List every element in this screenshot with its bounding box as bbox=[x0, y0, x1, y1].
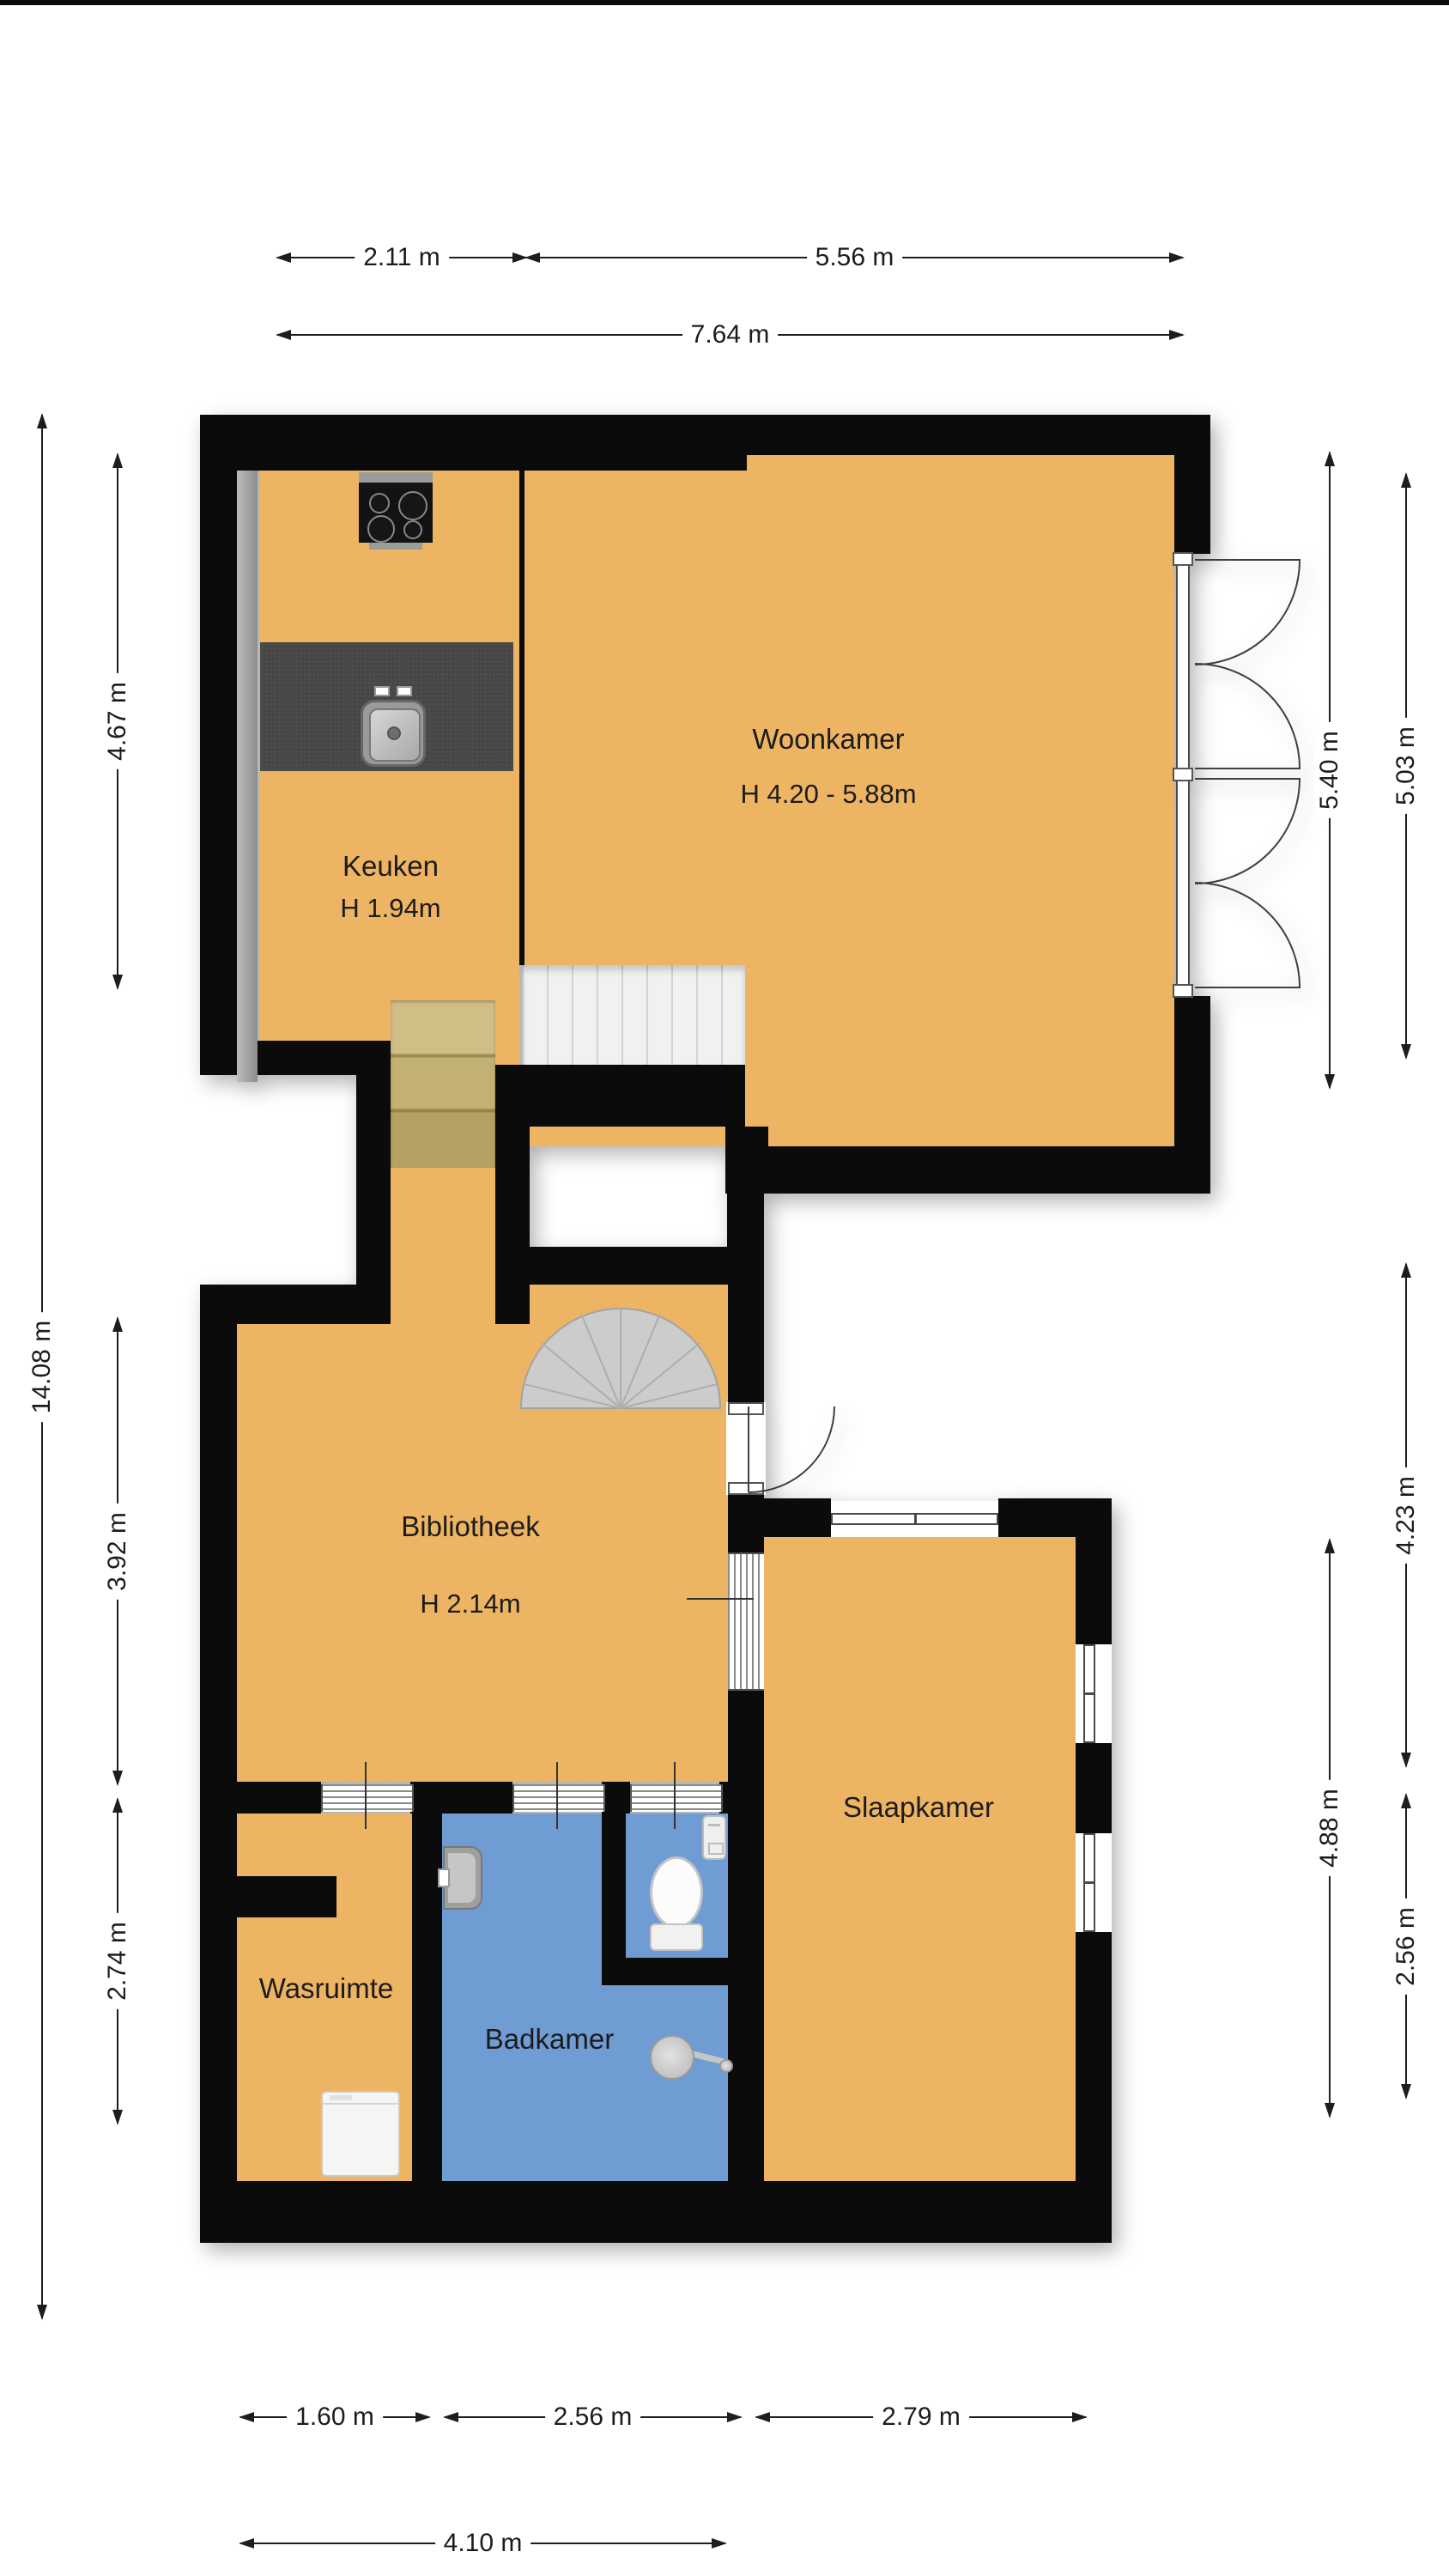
wall-slaap-top-right bbox=[998, 1498, 1112, 1537]
kitchen-faucet bbox=[374, 686, 390, 696]
kitchen-faucet-2 bbox=[397, 686, 412, 696]
cistern-icon bbox=[702, 1815, 726, 1860]
wall-left-lower bbox=[200, 1285, 237, 2243]
window-interior-1 bbox=[321, 1784, 414, 1812]
dim-bottom-2-56: 2.56 m bbox=[445, 2416, 741, 2418]
label-wasruimte: Wasruimte bbox=[259, 1972, 393, 2005]
wall-top-keuken bbox=[200, 415, 747, 471]
kitchen-sink-drain bbox=[387, 726, 401, 740]
wall-keuken-bottom bbox=[200, 1041, 391, 1075]
window-slaapkamer-right-2-divider bbox=[1083, 1881, 1095, 1884]
washing-machine-icon bbox=[321, 2091, 400, 2177]
window-interior-3 bbox=[630, 1784, 723, 1812]
window-sill-line bbox=[687, 1598, 754, 1600]
window-slaapkamer-top-divider bbox=[914, 1513, 917, 1525]
shower-sprayer bbox=[719, 2059, 733, 2073]
wall-keuken-woonkamer-divider bbox=[519, 458, 524, 965]
label-bibliotheek-height: H 2.14m bbox=[420, 1589, 520, 1619]
wall-slaap-right-a bbox=[1076, 1537, 1112, 1644]
bathroom-sink-tap bbox=[438, 1868, 450, 1887]
dim-right-4-23: 4.23 m bbox=[1405, 1264, 1407, 1766]
window-tick-1 bbox=[365, 1762, 367, 1829]
dim-left-3-92: 3.92 m bbox=[117, 1318, 118, 1784]
wall-bib-south-2 bbox=[410, 1782, 512, 1814]
label-keuken: Keuken bbox=[343, 850, 439, 883]
floorplan-drawing bbox=[0, 0, 1449, 2576]
stove-handle bbox=[359, 472, 433, 483]
wall-wasruimte-stub bbox=[237, 1876, 336, 1917]
window-bibliotheek-east bbox=[728, 1552, 764, 1691]
wall-toilet-niche-v bbox=[602, 1814, 626, 1958]
toilet-tank bbox=[650, 1923, 703, 1951]
wall-left-upper bbox=[200, 471, 237, 1075]
stove-foot bbox=[369, 543, 422, 550]
wall-stairs-connector bbox=[725, 1127, 768, 1152]
wall-right-upper-a bbox=[1174, 455, 1210, 554]
label-woonkamer-height: H 4.20 - 5.88m bbox=[740, 779, 916, 810]
window-interior-2 bbox=[512, 1784, 605, 1812]
dim-right-2-56: 2.56 m bbox=[1405, 1795, 1407, 2098]
window-tick-2 bbox=[556, 1762, 558, 1829]
dim-left-4-67: 4.67 m bbox=[117, 454, 118, 988]
label-keuken-height: H 1.94m bbox=[340, 893, 440, 924]
french-doors-cap-bottom bbox=[1173, 984, 1193, 998]
dim-bottom-4-10: 4.10 m bbox=[240, 2543, 725, 2544]
label-slaapkamer: Slaapkamer bbox=[843, 1791, 994, 1824]
wall-corridor-right bbox=[495, 1127, 530, 1324]
burner-small-1 bbox=[369, 493, 390, 513]
wall-bib-south-3 bbox=[602, 1782, 630, 1814]
dim-bottom-2-79: 2.79 m bbox=[756, 2416, 1086, 2418]
dim-top-5-56: 5.56 m bbox=[526, 257, 1183, 258]
toilet-icon bbox=[650, 1856, 703, 1929]
dim-left-2-74: 2.74 m bbox=[117, 1799, 118, 2123]
dim-top-2-11: 2.11 m bbox=[277, 257, 526, 258]
wall-bib-south-4 bbox=[719, 1782, 764, 1814]
wall-bib-top-b bbox=[530, 1247, 764, 1285]
window-tick-3 bbox=[674, 1762, 676, 1829]
dim-bottom-1-60: 1.60 m bbox=[240, 2416, 429, 2418]
kitchen-low-wall bbox=[237, 471, 258, 1082]
burner-large-1 bbox=[398, 491, 427, 520]
stove-icon bbox=[359, 483, 433, 543]
spiral-stairs bbox=[519, 1305, 722, 1410]
floorplan-page: Woonkamer H 4.20 - 5.88m Keuken H 1.94m … bbox=[0, 0, 1449, 2576]
door-swing-arc bbox=[725, 1370, 846, 1507]
wall-bib-south-1 bbox=[236, 1782, 321, 1814]
shower-icon bbox=[650, 2035, 694, 2080]
wall-toilet-niche-h bbox=[602, 1958, 728, 1985]
burner-large-2 bbox=[367, 515, 395, 543]
dim-right-5-03: 5.03 m bbox=[1405, 474, 1407, 1058]
label-bibliotheek: Bibliotheek bbox=[401, 1510, 539, 1543]
wall-bib-east-lower bbox=[728, 1687, 764, 2181]
wall-top-woonkamer bbox=[747, 415, 1210, 455]
dim-left-14-08: 14.08 m bbox=[41, 415, 43, 2318]
french-doors-cap-top bbox=[1173, 552, 1193, 566]
wall-slaap-right-b bbox=[1076, 1743, 1112, 1833]
straight-stairs bbox=[522, 965, 745, 1065]
dim-right-4-88: 4.88 m bbox=[1329, 1540, 1331, 2117]
burner-small-2 bbox=[403, 520, 422, 539]
dim-top-7-64: 7.64 m bbox=[277, 334, 1183, 336]
french-doors-cap-mid bbox=[1173, 768, 1193, 781]
floor-slaapkamer bbox=[764, 1537, 1076, 2181]
wall-woonkamer-bottom bbox=[725, 1146, 1210, 1194]
window-slaapkamer-right-1-divider bbox=[1083, 1692, 1095, 1695]
dim-right-5-40: 5.40 m bbox=[1329, 453, 1331, 1088]
bathroom-sink-basin bbox=[448, 1853, 476, 1903]
wall-under-stairs bbox=[495, 1065, 745, 1127]
label-badkamer: Badkamer bbox=[485, 2023, 614, 2056]
wall-bottom bbox=[200, 2181, 1112, 2243]
wood-steps bbox=[391, 1000, 495, 1168]
label-woonkamer: Woonkamer bbox=[752, 723, 904, 756]
